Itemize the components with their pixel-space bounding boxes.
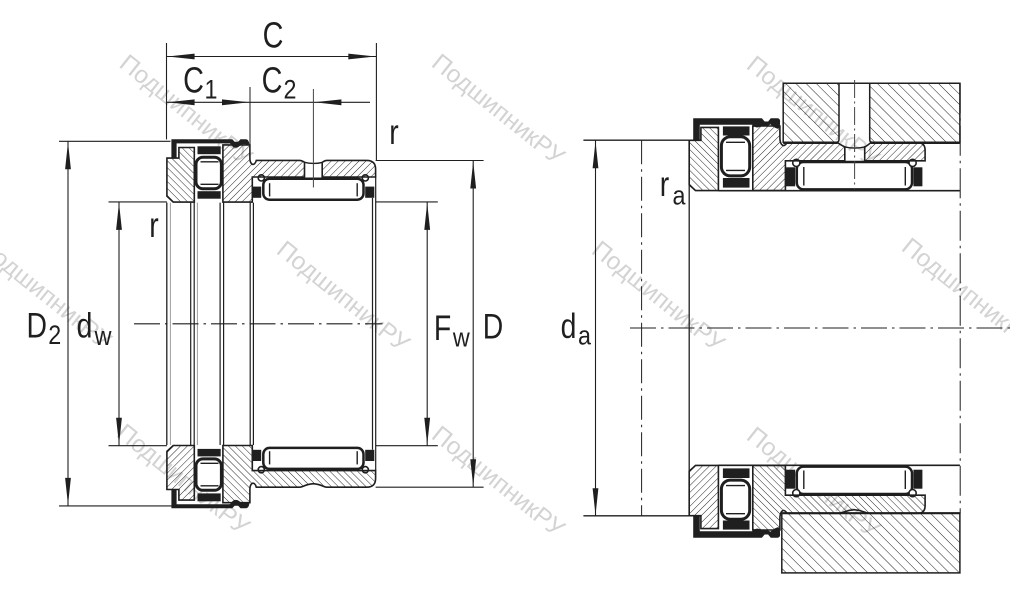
svg-text:D: D [483, 307, 503, 347]
svg-text:d: d [561, 306, 577, 346]
svg-text:w: w [94, 322, 113, 352]
svg-text:w: w [452, 323, 471, 353]
svg-text:a: a [673, 181, 686, 211]
svg-text:1: 1 [205, 75, 218, 105]
svg-text:C: C [183, 59, 204, 100]
svg-text:C: C [262, 59, 283, 100]
svg-text:2: 2 [284, 75, 297, 105]
svg-text:r: r [389, 112, 399, 152]
svg-text:2: 2 [48, 320, 61, 350]
svg-text:F: F [434, 308, 451, 348]
svg-text:r: r [149, 205, 159, 245]
svg-text:a: a [578, 321, 591, 351]
svg-text:d: d [77, 306, 93, 346]
svg-text:r: r [660, 164, 670, 204]
svg-text:D: D [26, 306, 46, 346]
svg-text:C: C [263, 14, 284, 55]
